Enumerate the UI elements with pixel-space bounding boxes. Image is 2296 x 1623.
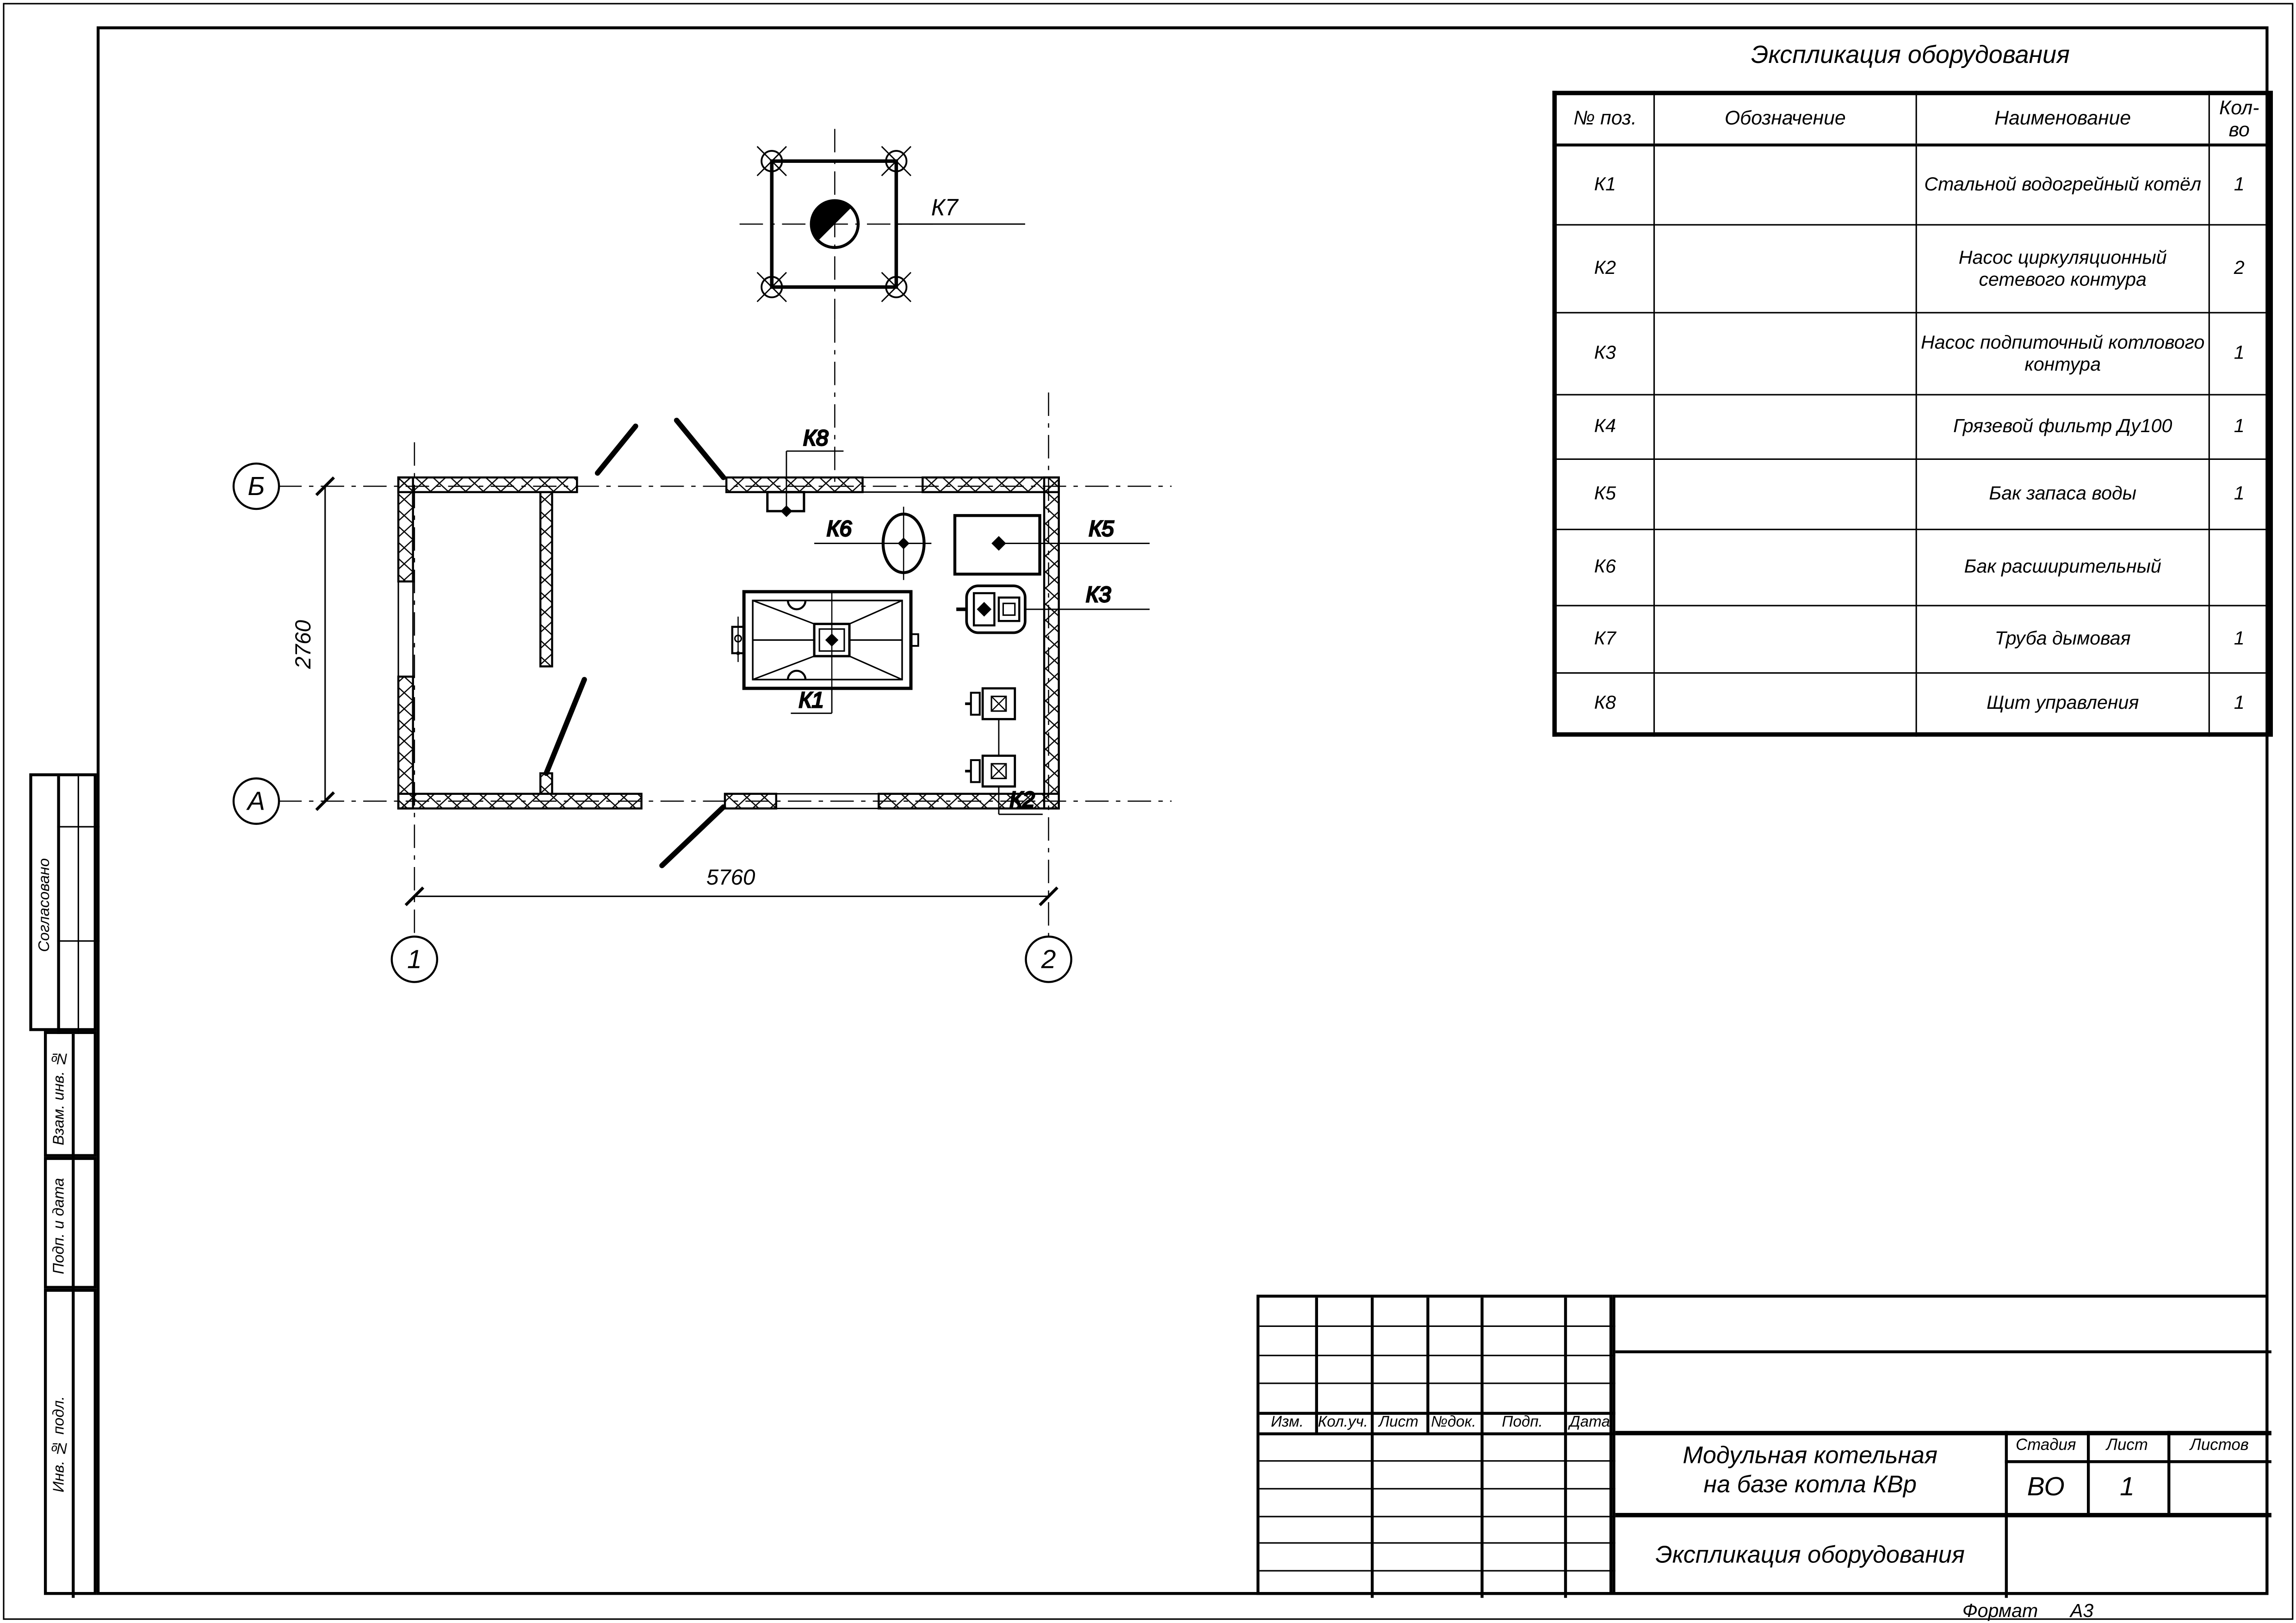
sidebar-label-podp: Подп. и дата xyxy=(47,1160,72,1292)
sidebar-podp-block: Подп. и дата xyxy=(44,1157,97,1289)
table-row: К7 Труба дымовая 1 xyxy=(1554,606,2271,673)
label-k1: К1 xyxy=(799,688,824,712)
equipment-table-title: Экспликация оборудования xyxy=(1553,41,2269,70)
axis-label-a: А xyxy=(246,787,265,816)
stage-value: ВО xyxy=(2005,1460,2087,1513)
label-k5: К5 xyxy=(1089,517,1114,541)
format-value: А3 xyxy=(2070,1599,2093,1621)
sidebar-label-agreed: Согласовано xyxy=(32,776,57,1034)
label-k3: К3 xyxy=(1086,582,1111,607)
axis-label-b: Б xyxy=(248,471,265,501)
col-header-pos: № поз. xyxy=(1554,93,1654,144)
tb-col-list: Лист xyxy=(1371,1412,1426,1432)
sheets-label: Листов xyxy=(2167,1431,2271,1460)
drawing-sheet: К7 xyxy=(0,0,2296,1623)
table-row: К3 Насос подпиточный котлового контура 1 xyxy=(1554,313,2271,395)
boiler-k1-symbol: К1 xyxy=(732,592,918,713)
sheets-value xyxy=(2167,1460,2271,1513)
tb-col-izm: Изм. xyxy=(1259,1412,1315,1432)
expansion-tank-k6-symbol: К6 xyxy=(814,507,931,580)
sidebar-inv-block: Инв. № подл. xyxy=(44,1289,97,1595)
table-row: К8 Щит управления 1 xyxy=(1554,673,2271,735)
svg-text:5760: 5760 xyxy=(706,865,755,890)
format-note: Формат А3 xyxy=(1962,1599,2255,1621)
tb-col-koluch: Кол.уч. xyxy=(1315,1412,1371,1432)
axis-markers xyxy=(234,464,1071,982)
titleblock-revision-grid: Изм. Кол.уч. Лист №док. Подп. Дата xyxy=(1256,1295,1612,1595)
col-header-qty: Кол-во xyxy=(2209,93,2271,144)
doc-title: Экспликация оборудования xyxy=(1615,1513,2005,1598)
col-header-name: Наименование xyxy=(1916,93,2209,144)
control-panel-k8-symbol: К8 xyxy=(767,426,844,517)
tb-col-podp: Подп. xyxy=(1480,1412,1564,1432)
col-header-designation: Обозначение xyxy=(1654,93,1917,144)
sidebar-label-inv: Инв. № подл. xyxy=(47,1292,72,1598)
table-row: К5 Бак запаса воды 1 xyxy=(1554,459,2271,529)
tb-col-data: Дата xyxy=(1564,1412,1615,1432)
label-k7: К7 xyxy=(931,194,959,220)
table-row: К2 Насос циркуляционный сетевого контура… xyxy=(1554,225,2271,313)
sheet-value: 1 xyxy=(2087,1460,2167,1513)
label-k2: К2 xyxy=(1009,787,1034,812)
equipment-table: № поз. Обозначение Наименование Кол-во К… xyxy=(1553,91,2273,737)
table-row: К6 Бак расширительный xyxy=(1554,529,2271,606)
project-title: Модульная котельная на базе котла КВр xyxy=(1615,1431,2005,1513)
dimension-2760: 2760 xyxy=(291,477,334,810)
sidebar-vzam-block: Взам. инв. № xyxy=(44,1031,97,1157)
titleblock-main: Модульная котельная на базе котла КВр Эк… xyxy=(1612,1295,2268,1595)
axis-marker-letters: Б А 1 2 xyxy=(246,471,1056,974)
scale-wrapper: К7 xyxy=(0,0,2296,1623)
sidebar-agreed-block: Согласовано xyxy=(29,773,97,1031)
svg-text:2760: 2760 xyxy=(291,620,316,669)
label-k8: К8 xyxy=(803,426,829,450)
sheet-label: Лист xyxy=(2087,1431,2167,1460)
chimney-k7-symbol: К7 xyxy=(740,129,1025,486)
tb-col-ndok: №док. xyxy=(1426,1412,1480,1432)
table-row: К4 Грязевой фильтр Ду100 1 xyxy=(1554,395,2271,459)
sidebar-label-vzam: Взам. инв. № xyxy=(47,1034,72,1160)
stage-label: Стадия xyxy=(2005,1431,2087,1460)
building-walls xyxy=(398,477,1059,808)
dimension-5760: 5760 xyxy=(406,865,1058,905)
format-label: Формат xyxy=(1962,1599,2038,1621)
axis-label-1: 1 xyxy=(407,944,422,974)
axis-label-2: 2 xyxy=(1041,944,1056,974)
table-row: К1 Стальной водогрейный котёл 1 xyxy=(1554,144,2271,225)
label-k6: К6 xyxy=(827,517,852,541)
